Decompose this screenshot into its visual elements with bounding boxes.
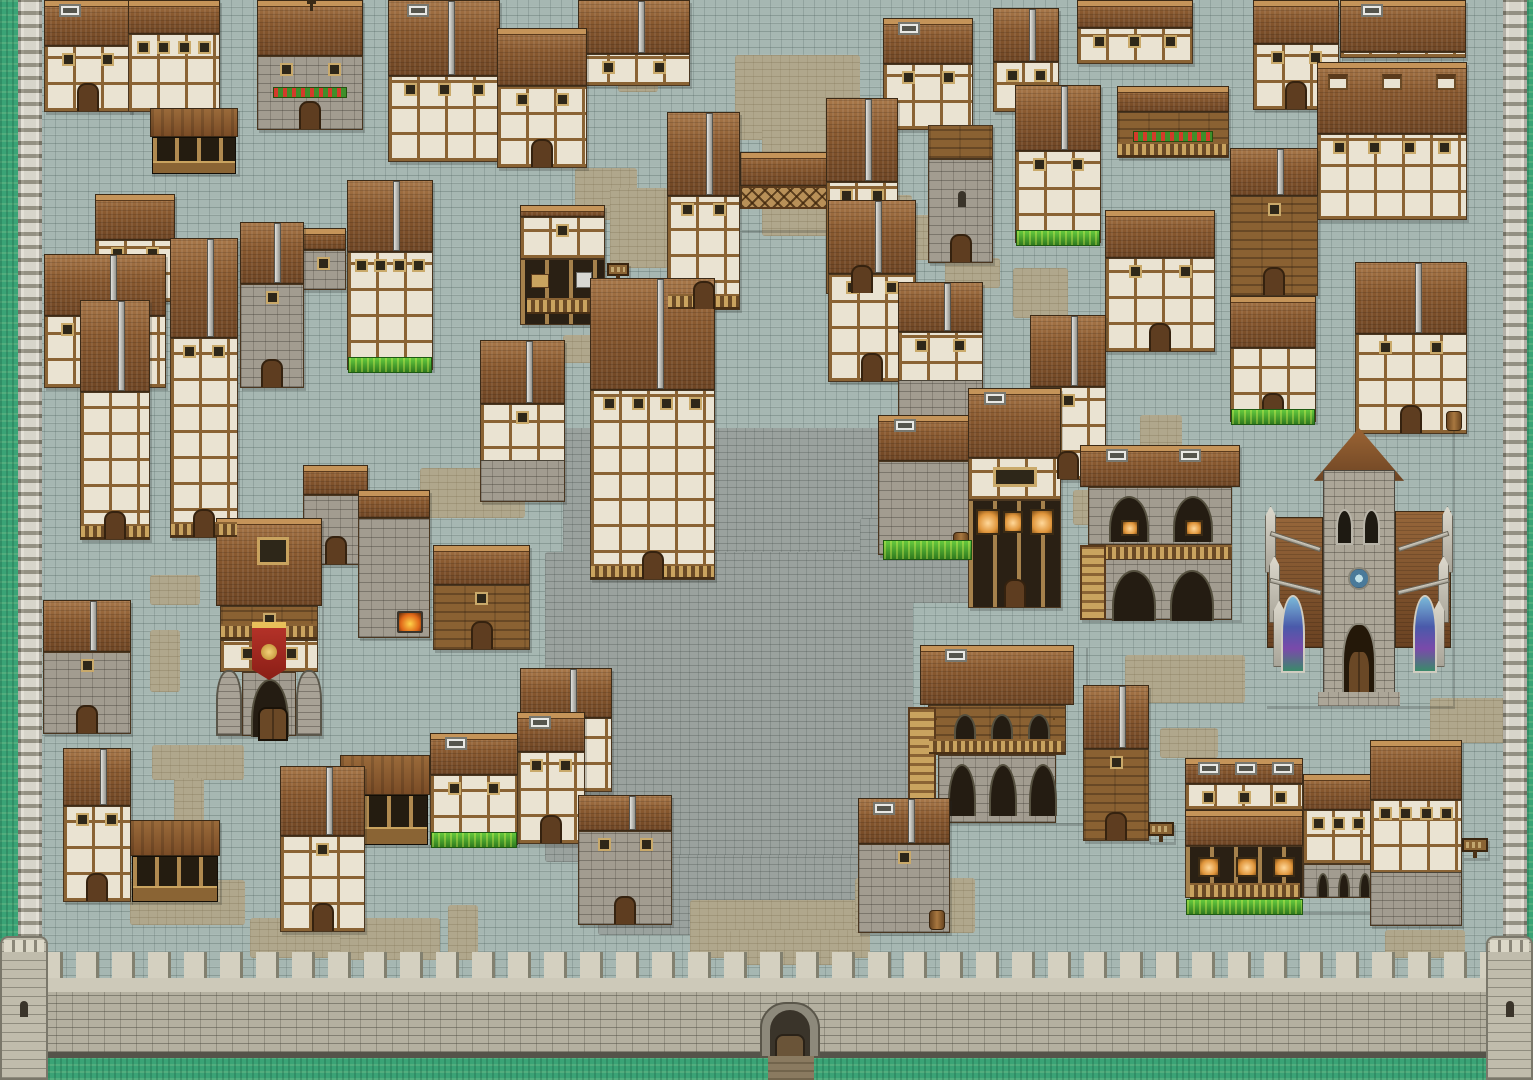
window bbox=[61, 323, 74, 336]
house-23-window-row bbox=[68, 813, 126, 826]
building-bakery-arches[interactable] bbox=[1080, 445, 1240, 620]
window bbox=[1238, 791, 1251, 804]
inn-turret-east bbox=[296, 670, 322, 736]
window bbox=[1110, 756, 1123, 769]
building-balcony-house[interactable] bbox=[1117, 86, 1229, 158]
window bbox=[62, 53, 75, 66]
building-barrel-house[interactable] bbox=[858, 798, 950, 933]
window bbox=[404, 83, 417, 96]
bridge-house-west-door bbox=[693, 281, 715, 309]
house-6-roof bbox=[883, 18, 973, 64]
flower-box bbox=[1133, 131, 1212, 142]
general-store-door bbox=[1004, 579, 1026, 607]
window bbox=[1033, 158, 1046, 171]
gate-path bbox=[768, 1056, 814, 1080]
window bbox=[198, 41, 211, 54]
house-11-facade bbox=[1105, 258, 1215, 352]
window bbox=[178, 41, 191, 54]
general-store-storefront[interactable] bbox=[968, 500, 1061, 608]
grass-strip bbox=[348, 357, 432, 373]
window bbox=[448, 782, 461, 795]
sign-west-post bbox=[1159, 835, 1163, 842]
wood-tower-door bbox=[1263, 267, 1285, 295]
house-26-facade bbox=[517, 752, 585, 844]
building-tall-house-center[interactable] bbox=[590, 278, 715, 580]
barrel bbox=[929, 910, 945, 930]
stable-awning bbox=[130, 820, 220, 856]
bakery-arches-base bbox=[1088, 559, 1232, 620]
bridge-span-railing bbox=[740, 186, 828, 209]
house-20-window-row bbox=[903, 339, 978, 352]
window bbox=[280, 63, 293, 76]
porch-house-window-row bbox=[438, 592, 525, 605]
porch-house-roof bbox=[433, 545, 530, 585]
house-30-facade bbox=[1083, 749, 1149, 841]
building-stone-house-south[interactable] bbox=[578, 795, 672, 925]
building-guild-inn[interactable] bbox=[216, 518, 322, 736]
tavern-shopfront[interactable] bbox=[1185, 846, 1303, 898]
lit-display bbox=[1030, 509, 1054, 535]
building-roof-house[interactable] bbox=[1340, 0, 1466, 58]
house-21-door bbox=[1057, 451, 1079, 479]
house-1-facade bbox=[44, 46, 132, 112]
lit-window bbox=[1198, 857, 1220, 877]
house-22-roof bbox=[43, 600, 131, 652]
building-church[interactable] bbox=[1265, 428, 1453, 706]
town-map[interactable] bbox=[0, 0, 1533, 1080]
house-3-facade bbox=[388, 76, 500, 162]
window bbox=[1274, 791, 1287, 804]
chimney bbox=[898, 22, 920, 35]
stone-house-south-window-row bbox=[583, 838, 667, 851]
dormer-house-window-row bbox=[1322, 141, 1462, 154]
house-6-window-row bbox=[888, 71, 968, 84]
window bbox=[653, 61, 666, 74]
house-13-door bbox=[1400, 405, 1422, 433]
building-flower-house-1[interactable] bbox=[257, 0, 363, 130]
chimney bbox=[407, 4, 429, 17]
house-3-window-row bbox=[393, 83, 495, 96]
window bbox=[1333, 141, 1346, 154]
house-2-window-row bbox=[133, 41, 215, 54]
oven-arch bbox=[1109, 496, 1149, 542]
building-house-9[interactable] bbox=[1077, 0, 1193, 64]
tavern-east-wing bbox=[1303, 810, 1373, 864]
building-stable[interactable] bbox=[130, 820, 220, 902]
stone-house-south-facade bbox=[578, 831, 672, 925]
window bbox=[1420, 807, 1433, 820]
window bbox=[1399, 807, 1412, 820]
bakery-arches-stairs[interactable] bbox=[1080, 545, 1106, 620]
stone-base bbox=[1371, 872, 1461, 925]
house-24-roof bbox=[280, 766, 365, 836]
lit-window bbox=[1273, 857, 1295, 877]
building-house-13[interactable] bbox=[1355, 262, 1467, 434]
building-tavern[interactable] bbox=[1185, 758, 1373, 912]
window bbox=[1379, 807, 1392, 820]
building-house-4[interactable] bbox=[497, 28, 587, 168]
smithy-forge-roof bbox=[358, 490, 430, 518]
gallery-opening bbox=[991, 714, 1013, 740]
building-warehouse[interactable] bbox=[878, 415, 974, 555]
window bbox=[183, 345, 196, 358]
general-store-roof bbox=[968, 388, 1061, 458]
house-24-facade bbox=[280, 836, 365, 932]
building-house-23[interactable] bbox=[63, 748, 131, 902]
roof-cross bbox=[310, 0, 313, 11]
chimney bbox=[1198, 762, 1220, 775]
cellar-arch bbox=[1317, 873, 1329, 897]
window bbox=[1062, 394, 1075, 407]
window bbox=[317, 257, 330, 270]
window bbox=[1093, 35, 1106, 48]
building-house-11[interactable] bbox=[1105, 210, 1215, 352]
window bbox=[902, 71, 915, 84]
tavern-window-row bbox=[1190, 791, 1298, 804]
wood-tower-window-row bbox=[1235, 203, 1313, 216]
big-house-west-window-row bbox=[352, 259, 428, 272]
window bbox=[559, 759, 572, 772]
house-13-roof bbox=[1355, 262, 1467, 334]
house-9-window-row bbox=[1082, 35, 1188, 48]
chimney bbox=[873, 802, 895, 815]
window bbox=[603, 397, 616, 410]
house-19-roof bbox=[828, 200, 916, 274]
window bbox=[885, 281, 898, 294]
building-house-25[interactable] bbox=[430, 733, 518, 845]
house-31-roof bbox=[1370, 740, 1462, 800]
window bbox=[915, 339, 928, 352]
house-16-window-row bbox=[245, 291, 299, 304]
house-13-facade bbox=[1355, 334, 1467, 434]
shop-armory-window-row bbox=[525, 224, 600, 237]
oven-fire bbox=[1185, 520, 1203, 536]
market-stall-1-counter bbox=[152, 137, 237, 174]
stilt-lodge-gallery bbox=[928, 705, 1066, 755]
chimney bbox=[945, 649, 967, 662]
building-general-store[interactable] bbox=[968, 388, 1061, 608]
window bbox=[713, 203, 726, 216]
flower-box bbox=[273, 87, 348, 98]
roof-house-roof bbox=[1340, 0, 1466, 52]
grass-strip-deco-1 bbox=[883, 540, 972, 560]
stained-glass-west bbox=[1281, 595, 1305, 673]
building-sign-west[interactable] bbox=[1148, 822, 1174, 842]
building-house-16[interactable] bbox=[240, 222, 304, 388]
south-gate[interactable] bbox=[760, 1002, 820, 1058]
sign-east-post bbox=[1473, 851, 1477, 858]
house-17-window-row bbox=[305, 257, 341, 270]
building-house-2[interactable] bbox=[128, 0, 220, 112]
building-big-house-west[interactable] bbox=[347, 180, 433, 370]
house-4-roof bbox=[497, 28, 587, 86]
base-arch bbox=[1170, 570, 1214, 621]
church-plinth bbox=[1318, 692, 1401, 706]
smith-sign-board bbox=[607, 263, 629, 276]
building-house-12[interactable] bbox=[1230, 296, 1316, 422]
tavern-upper bbox=[1185, 784, 1303, 810]
window bbox=[1268, 203, 1281, 216]
tall-house-west-roof bbox=[80, 300, 150, 392]
building-house-30[interactable] bbox=[1083, 685, 1149, 841]
inn-door bbox=[258, 707, 288, 741]
window bbox=[1006, 69, 1019, 82]
building-tall-house-2[interactable] bbox=[170, 238, 238, 538]
window bbox=[101, 53, 114, 66]
barrel-house-facade bbox=[858, 844, 950, 933]
window bbox=[556, 93, 569, 106]
window bbox=[487, 782, 500, 795]
stone-tower-north-body bbox=[928, 159, 993, 263]
lancet-window bbox=[1363, 509, 1380, 545]
warehouse-roof bbox=[878, 415, 974, 461]
balcony-house-facade bbox=[1117, 112, 1229, 158]
flower-house-1-door bbox=[299, 101, 321, 129]
chimney bbox=[59, 4, 81, 17]
big-house-west-facade bbox=[347, 252, 433, 370]
window bbox=[516, 411, 529, 424]
flower-house-1-roof bbox=[257, 0, 363, 56]
house-11-window-row bbox=[1110, 265, 1210, 278]
arcade-arch bbox=[948, 764, 976, 816]
house-9-facade bbox=[1077, 28, 1193, 64]
window bbox=[1129, 265, 1142, 278]
house-5-facade bbox=[578, 54, 690, 86]
building-sign-east[interactable] bbox=[1462, 838, 1488, 858]
house-13-window-row bbox=[1360, 341, 1462, 354]
house-26-door bbox=[540, 815, 562, 843]
building-dormer-house[interactable] bbox=[1317, 62, 1467, 220]
bakery-arches-roof bbox=[1080, 445, 1240, 487]
counter bbox=[1190, 883, 1300, 899]
house-22-facade bbox=[43, 652, 131, 734]
building-house-3[interactable] bbox=[388, 0, 500, 162]
building-house-smith[interactable] bbox=[480, 340, 565, 502]
house-8-window-row bbox=[998, 69, 1054, 82]
roof-house-facade bbox=[1340, 52, 1466, 58]
window bbox=[1368, 141, 1381, 154]
dormer-window bbox=[1436, 74, 1456, 90]
house-24-door bbox=[312, 903, 334, 931]
building-smithy-forge[interactable] bbox=[358, 490, 430, 638]
house-27-roof bbox=[520, 668, 612, 718]
building-stilt-lodge[interactable] bbox=[908, 645, 1086, 823]
stone-house-south-door bbox=[614, 896, 636, 924]
house-25-window-row bbox=[435, 782, 513, 795]
tavern-roof bbox=[1303, 774, 1373, 810]
house-23-door bbox=[86, 873, 108, 901]
window bbox=[598, 838, 611, 851]
window bbox=[412, 259, 425, 272]
building-bridge-span[interactable] bbox=[740, 152, 828, 230]
window bbox=[1312, 817, 1325, 830]
smithy-forge-facade bbox=[358, 518, 430, 638]
house-1-door bbox=[77, 83, 99, 111]
bridge-house-east-door bbox=[851, 265, 873, 293]
bakery-arches-oven-band bbox=[1088, 487, 1232, 545]
building-house-24[interactable] bbox=[280, 766, 365, 932]
window bbox=[1379, 341, 1392, 354]
building-house-1[interactable] bbox=[44, 0, 132, 112]
house-30-window-row bbox=[1088, 756, 1144, 769]
window bbox=[241, 647, 254, 660]
shop-armory-upper bbox=[520, 217, 605, 259]
window bbox=[1352, 817, 1365, 830]
house-smith-window-row bbox=[485, 411, 560, 424]
base-arch bbox=[1112, 570, 1156, 621]
barrel-house-roof bbox=[858, 798, 950, 844]
chimney bbox=[445, 737, 467, 750]
house-31-facade bbox=[1370, 800, 1462, 926]
dormer-row bbox=[1328, 74, 1455, 90]
window bbox=[1071, 158, 1084, 171]
dormer-house-roof bbox=[1317, 62, 1467, 134]
building-house-5[interactable] bbox=[578, 0, 690, 86]
window bbox=[1128, 35, 1141, 48]
window bbox=[137, 41, 150, 54]
house-1-window-row bbox=[49, 53, 127, 66]
inn-turret-west bbox=[216, 670, 242, 736]
house-22-door bbox=[76, 705, 98, 733]
stable-counter bbox=[132, 856, 218, 902]
window bbox=[1164, 35, 1177, 48]
grass-strip bbox=[1186, 899, 1303, 915]
stone-tower-north-cap bbox=[928, 125, 993, 159]
oven-arch bbox=[1173, 496, 1213, 542]
window bbox=[516, 93, 529, 106]
gallery-railing bbox=[929, 739, 1065, 754]
lit-display bbox=[976, 509, 1000, 535]
window bbox=[472, 83, 485, 96]
window bbox=[530, 759, 543, 772]
market-stall-1-awning bbox=[150, 108, 238, 137]
lit-display bbox=[1003, 511, 1023, 533]
grass-strip bbox=[431, 832, 517, 848]
tall-house-center-door bbox=[642, 551, 664, 579]
window bbox=[475, 592, 488, 605]
tall-house-2-door bbox=[193, 509, 215, 537]
window bbox=[1430, 341, 1443, 354]
bridge-span-roof bbox=[740, 152, 828, 186]
forge-fire bbox=[397, 611, 423, 633]
building-house-31[interactable] bbox=[1370, 740, 1462, 926]
building-house-17[interactable] bbox=[300, 228, 346, 290]
lit-window bbox=[1236, 857, 1258, 877]
house-23-roof bbox=[63, 748, 131, 806]
stone-base bbox=[481, 460, 564, 501]
house-20-roof bbox=[898, 282, 983, 332]
arch-house-door bbox=[325, 536, 347, 564]
house-23-facade bbox=[63, 806, 131, 902]
attic-window bbox=[257, 537, 289, 565]
tavern-window-row bbox=[1308, 817, 1368, 830]
chimney bbox=[1106, 449, 1128, 462]
window bbox=[157, 41, 170, 54]
building-porch-house[interactable] bbox=[433, 545, 530, 650]
oven-fire bbox=[1121, 520, 1139, 536]
tavern-roof bbox=[1185, 758, 1303, 784]
window bbox=[1034, 69, 1047, 82]
house-smith-roof bbox=[480, 340, 565, 404]
tavern-east-base bbox=[1303, 864, 1373, 898]
house-17-roof bbox=[300, 228, 346, 250]
window bbox=[1440, 807, 1453, 820]
window bbox=[316, 843, 329, 856]
shop-armory-eave bbox=[520, 205, 605, 217]
house-12-roof bbox=[1230, 296, 1316, 348]
display-window bbox=[993, 467, 1037, 487]
window bbox=[105, 813, 118, 826]
building-tall-house-west[interactable] bbox=[80, 300, 150, 540]
lancet-window bbox=[1336, 509, 1353, 545]
chimney bbox=[1179, 449, 1201, 462]
tall-house-center-facade bbox=[590, 390, 715, 580]
flower-house-1-facade bbox=[257, 56, 363, 130]
house-2-facade bbox=[128, 34, 220, 112]
dormer-house-facade bbox=[1317, 134, 1467, 220]
house-30-roof bbox=[1083, 685, 1149, 749]
window bbox=[355, 259, 368, 272]
building-house-7[interactable] bbox=[1015, 85, 1101, 243]
building-stone-tower-north[interactable] bbox=[928, 125, 993, 263]
tall-house-2-facade bbox=[170, 338, 238, 538]
house-4-door bbox=[531, 139, 553, 167]
window bbox=[374, 259, 387, 272]
stone-house-south-roof bbox=[578, 795, 672, 831]
house-5-window-row bbox=[583, 61, 685, 74]
window bbox=[640, 838, 653, 851]
house-1-roof bbox=[44, 0, 132, 46]
guild-inn-entrance[interactable] bbox=[242, 672, 296, 736]
building-wood-tower[interactable] bbox=[1230, 148, 1318, 296]
window bbox=[953, 339, 966, 352]
window bbox=[1179, 265, 1192, 278]
window bbox=[1438, 141, 1451, 154]
house-16-facade bbox=[240, 284, 304, 388]
balcony-railing bbox=[1118, 142, 1228, 157]
tall-house-center-window-row bbox=[595, 397, 710, 410]
house-10-door bbox=[1285, 81, 1307, 109]
window bbox=[438, 83, 451, 96]
house-30-door bbox=[1105, 812, 1127, 840]
chimney bbox=[1361, 4, 1383, 17]
balcony-house-roof bbox=[1117, 86, 1229, 112]
house-4-window-row bbox=[502, 93, 582, 106]
bridge-house-west-window-row bbox=[672, 203, 735, 216]
window bbox=[81, 659, 94, 672]
sign-west-board bbox=[1148, 822, 1174, 836]
dormer-window bbox=[1382, 74, 1402, 90]
house-7-window-row bbox=[1020, 158, 1096, 171]
house-10-roof bbox=[1253, 0, 1339, 44]
entrance-arch bbox=[251, 679, 289, 737]
house-3-roof bbox=[388, 0, 500, 76]
building-house-26[interactable] bbox=[517, 712, 585, 844]
house-21-roof bbox=[1030, 315, 1106, 387]
building-house-22[interactable] bbox=[43, 600, 131, 734]
goods-crate bbox=[531, 274, 549, 288]
window bbox=[602, 61, 615, 74]
house-26-window-row bbox=[522, 759, 580, 772]
guild-banner bbox=[252, 622, 286, 680]
window bbox=[632, 397, 645, 410]
window bbox=[942, 71, 955, 84]
bridge-house-west-roof bbox=[667, 112, 740, 196]
bridge-house-east-roof bbox=[826, 98, 898, 182]
building-market-stall-1[interactable] bbox=[150, 108, 238, 174]
window bbox=[660, 397, 673, 410]
barrel-house-window-row bbox=[863, 851, 945, 864]
